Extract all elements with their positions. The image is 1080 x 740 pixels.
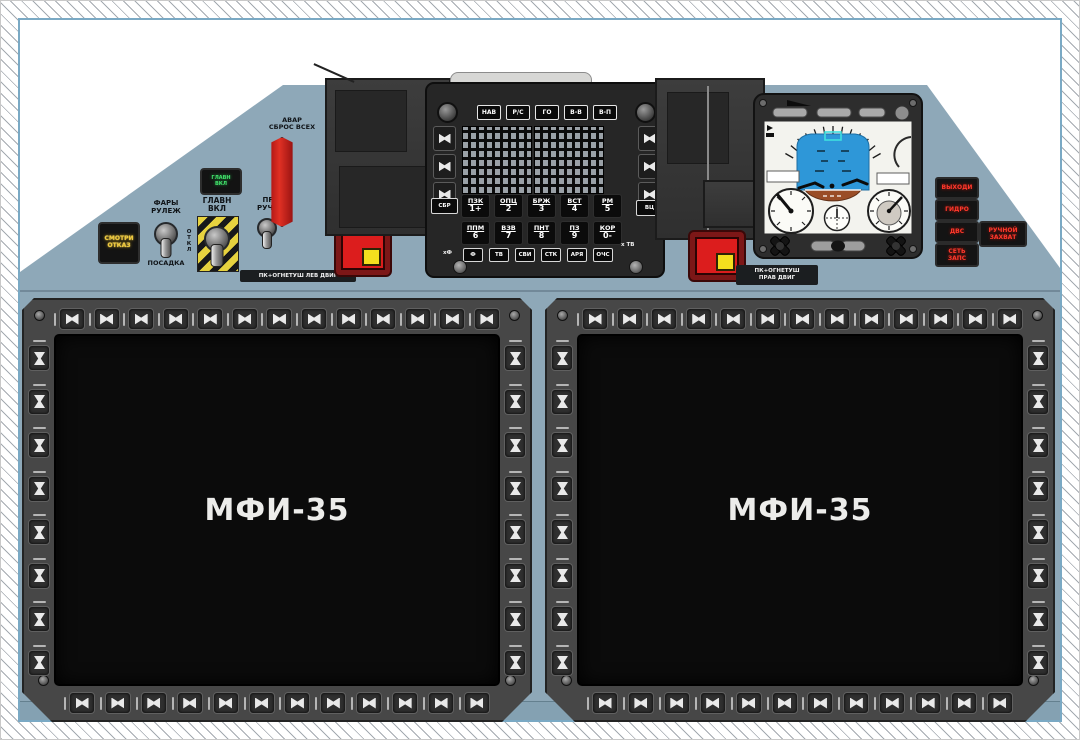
bezel-separator <box>838 697 840 710</box>
bezel-cell <box>244 692 275 714</box>
bezel-button[interactable] <box>915 692 941 714</box>
warning-light: ГИДРО <box>935 199 979 221</box>
bezel-button[interactable] <box>28 606 50 632</box>
bezel-cell <box>612 308 643 330</box>
bezel-cell <box>504 427 526 458</box>
key-vzv-7[interactable]: ВЗВ7 <box>494 221 523 245</box>
bezel-button[interactable] <box>592 692 618 714</box>
bezel-separator <box>33 514 46 516</box>
warning-light: ДВС <box>935 221 979 243</box>
bowtie-icon <box>1033 613 1044 626</box>
mode-button-row: НАВ Р/С ГО В-В В-П <box>477 105 617 120</box>
bowtie-icon <box>238 314 251 325</box>
bezel-cell <box>1027 558 1049 589</box>
bezel-button[interactable] <box>551 563 573 589</box>
bezel-separator <box>1032 601 1045 603</box>
bowtie-icon <box>480 314 493 325</box>
key-svi[interactable]: СВИ <box>515 248 535 262</box>
bezel-button[interactable] <box>504 476 526 502</box>
bezel-button[interactable] <box>551 389 573 415</box>
bezel-button[interactable] <box>94 308 120 330</box>
bowtie-icon <box>204 314 217 325</box>
bezel-button[interactable] <box>551 650 573 676</box>
bowtie-icon <box>865 314 878 325</box>
bowtie-icon <box>934 314 947 325</box>
bowtie-icon <box>510 395 521 408</box>
bezel-cell <box>1027 384 1049 415</box>
bezel-cell <box>551 558 573 589</box>
bezel-separator <box>261 313 263 326</box>
bezel-separator <box>509 384 522 386</box>
bezel-button[interactable] <box>686 308 712 330</box>
bezel-cell <box>434 308 465 330</box>
bezel-button[interactable] <box>504 345 526 371</box>
bowtie-icon <box>219 698 232 709</box>
bezel-button[interactable] <box>651 308 677 330</box>
bezel-cell <box>387 692 418 714</box>
bezel-separator <box>874 697 876 710</box>
bezel-separator <box>423 697 425 710</box>
numeric-key-row-2: ППМ6 ВЗВ7 ПНТ8 ПЗ9 КОР0- <box>461 221 622 245</box>
bowtie-icon <box>510 656 521 669</box>
key-num-label: 3 <box>539 205 545 213</box>
bezel-separator <box>459 697 461 710</box>
bowtie-icon <box>34 526 45 539</box>
alphanumeric-matrix-left <box>462 126 532 194</box>
bezel-screw <box>557 310 568 321</box>
bezel-button[interactable] <box>1027 650 1049 676</box>
bezel-separator <box>854 313 856 326</box>
bezel-separator <box>1032 427 1045 429</box>
fire-button-face <box>341 232 385 270</box>
bowtie-icon <box>1003 314 1016 325</box>
bezel-button[interactable] <box>997 308 1023 330</box>
bezel-button[interactable] <box>464 692 490 714</box>
key-pz-9[interactable]: ПЗ9 <box>560 221 589 245</box>
bezel-button[interactable] <box>266 308 292 330</box>
switch-lever <box>262 231 272 249</box>
bezel-cell <box>1027 645 1049 676</box>
bezel-col-right <box>1026 340 1050 676</box>
bezel-button[interactable] <box>879 692 905 714</box>
key-f[interactable]: Ф <box>463 248 483 262</box>
bezel-button[interactable] <box>392 692 418 714</box>
bezel-button[interactable] <box>474 308 500 330</box>
bezel-cell <box>854 308 885 330</box>
bezel-separator <box>659 697 661 710</box>
posadka-label: ПОСАДКА <box>134 260 198 267</box>
bezel-cell <box>504 514 526 545</box>
bowtie-icon <box>831 314 844 325</box>
bowtie-icon <box>363 698 376 709</box>
bezel-button[interactable] <box>69 692 95 714</box>
bowtie-icon <box>557 395 568 408</box>
bezel-button[interactable] <box>1027 519 1049 545</box>
bezel-button[interactable] <box>439 308 465 330</box>
bezel-button[interactable] <box>405 308 431 330</box>
bezel-cell <box>1027 514 1049 545</box>
key-opc-2[interactable]: ОПЦ2 <box>494 194 523 218</box>
bezel-separator <box>556 601 569 603</box>
bowtie-icon <box>623 314 636 325</box>
bezel-cell <box>296 308 327 330</box>
bezel-button[interactable] <box>249 692 275 714</box>
bezel-separator <box>819 313 821 326</box>
bezel-button[interactable] <box>28 650 50 676</box>
bezel-cell <box>767 692 798 714</box>
console-screw-left <box>453 260 467 274</box>
bezel-separator <box>244 697 246 710</box>
bezel-button[interactable] <box>755 308 781 330</box>
bezel-button[interactable] <box>370 308 396 330</box>
bezel-cell <box>577 308 608 330</box>
fire-button-face <box>695 237 739 275</box>
bezel-separator <box>556 471 569 473</box>
bowtie-icon <box>34 352 45 365</box>
bezel-button[interactable] <box>28 345 50 371</box>
bezel-button[interactable] <box>128 308 154 330</box>
avar-sbros-handle[interactable] <box>268 137 296 227</box>
avar-sbros-label: АВАР СБРОС ВСЕХ <box>256 117 328 131</box>
bezel-separator <box>296 313 298 326</box>
bowtie-icon <box>135 314 148 325</box>
bowtie-icon <box>399 698 412 709</box>
bezel-button[interactable] <box>1027 389 1049 415</box>
bezel-button[interactable] <box>789 308 815 330</box>
key-rm-5[interactable]: РМ5 <box>593 194 622 218</box>
bowtie-icon <box>796 314 809 325</box>
key-num-label: 4 <box>572 205 578 213</box>
bezel-cell <box>838 692 869 714</box>
bezel-button[interactable] <box>551 432 573 458</box>
key-kor-0[interactable]: КОР0- <box>593 221 622 245</box>
bezel-separator <box>279 697 281 710</box>
bezel-separator <box>509 427 522 429</box>
console-knob-right[interactable] <box>635 102 656 123</box>
bezel-cell <box>992 308 1023 330</box>
bezel-cell <box>28 558 50 589</box>
bezel-cell <box>551 514 573 545</box>
bowtie-icon <box>510 569 521 582</box>
bezel-cell <box>28 471 50 502</box>
bezel-cell <box>208 692 239 714</box>
bezel-button[interactable] <box>504 563 526 589</box>
bezel-button[interactable] <box>28 563 50 589</box>
key-num-label: 8 <box>539 232 545 240</box>
bezel-cell <box>331 308 362 330</box>
bezel-cell <box>1027 427 1049 458</box>
bezel-button[interactable] <box>551 476 573 502</box>
bezel-separator <box>158 313 160 326</box>
bezel-separator <box>802 697 804 710</box>
bezel-cell <box>136 692 167 714</box>
bezel-button[interactable] <box>28 389 50 415</box>
bezel-separator <box>556 645 569 647</box>
bowtie-icon <box>34 395 45 408</box>
bowtie-icon <box>435 698 448 709</box>
bezel-screw <box>1032 310 1043 321</box>
fire-right-tag: ПК+ОГНЕТУШ ПРАВ ДВИГ <box>736 265 818 285</box>
bezel-button[interactable] <box>628 692 654 714</box>
bezel-separator <box>556 340 569 342</box>
bezel-button[interactable] <box>951 692 977 714</box>
bowtie-icon <box>1033 569 1044 582</box>
bezel-cell <box>819 308 850 330</box>
bezel-cell <box>504 558 526 589</box>
bezel-button[interactable] <box>320 692 346 714</box>
key-ochs[interactable]: ОЧС <box>593 248 613 262</box>
bezel-separator <box>957 313 959 326</box>
bezel-button[interactable] <box>504 432 526 458</box>
bezel-cell <box>659 692 690 714</box>
bowtie-icon <box>814 698 827 709</box>
mfd-screen: МФИ-35 <box>577 334 1023 686</box>
bezel-separator <box>982 697 984 710</box>
bezel-separator <box>469 313 471 326</box>
bowtie-icon <box>599 698 612 709</box>
bezel-separator <box>315 697 317 710</box>
key-num-label: 1+ <box>469 205 481 213</box>
bowtie-icon <box>557 352 568 365</box>
bowtie-icon <box>692 314 705 325</box>
bezel-button[interactable] <box>617 308 643 330</box>
data-entry-console: НАВ Р/С ГО В-В В-П СБР ВЦ ПЗК1+ ОПЦ2 БРЖ… <box>425 82 665 278</box>
bezel-button[interactable] <box>664 692 690 714</box>
key-vst-4[interactable]: ВСТ4 <box>560 194 589 218</box>
bezel-cell <box>315 692 346 714</box>
bowtie-icon <box>850 698 863 709</box>
rocker-glyph-icon <box>439 134 451 144</box>
fire-button-yellow-square <box>362 248 381 266</box>
bezel-button[interactable] <box>28 519 50 545</box>
bezel-cell <box>888 308 919 330</box>
bowtie-icon <box>470 698 483 709</box>
bezel-cell <box>551 601 573 632</box>
bezel-cell <box>695 692 726 714</box>
bezel-cell <box>646 308 677 330</box>
mode-button-vv[interactable]: В-В <box>564 105 588 120</box>
bezel-button[interactable] <box>141 692 167 714</box>
mode-button-vp[interactable]: В-П <box>593 105 617 120</box>
bezel-button[interactable] <box>928 308 954 330</box>
bezel-button[interactable] <box>893 308 919 330</box>
bezel-cell <box>551 427 573 458</box>
bezel-separator <box>33 645 46 647</box>
bezel-button[interactable] <box>504 389 526 415</box>
bowtie-icon <box>1033 526 1044 539</box>
bezel-cell <box>192 308 223 330</box>
bezel-button[interactable] <box>28 432 50 458</box>
bezel-separator <box>434 313 436 326</box>
key-ppm-6[interactable]: ППМ6 <box>461 221 490 245</box>
mode-button-rs[interactable]: Р/С <box>506 105 530 120</box>
glavn-vkl-switch[interactable] <box>204 226 230 252</box>
bezel-cell <box>1027 471 1049 502</box>
bezel-button[interactable] <box>1027 476 1049 502</box>
bezel-button[interactable] <box>163 308 189 330</box>
bezel-cell <box>731 692 762 714</box>
mfd-model-label: МФИ-35 <box>205 493 350 528</box>
bezel-button[interactable] <box>336 308 362 330</box>
bowtie-icon <box>100 314 113 325</box>
bezel-button[interactable] <box>551 606 573 632</box>
bowtie-icon <box>76 698 89 709</box>
bowtie-icon <box>147 698 160 709</box>
bezel-button[interactable] <box>736 692 762 714</box>
smotri-otkaz-annunciator: СМОТРИ ОТКАЗ <box>98 222 140 264</box>
bowtie-icon <box>34 482 45 495</box>
bezel-separator <box>351 697 353 710</box>
bezel-separator <box>509 645 522 647</box>
mode-button-nav[interactable]: НАВ <box>477 105 501 120</box>
key-stk[interactable]: СТК <box>541 248 561 262</box>
key-pnt-8[interactable]: ПНТ8 <box>527 221 556 245</box>
bezel-button[interactable] <box>356 692 382 714</box>
key-brzh-3[interactable]: БРЖ3 <box>527 194 556 218</box>
console-knob-left[interactable] <box>437 102 458 123</box>
key-tv[interactable]: ТВ <box>489 248 509 262</box>
mode-button-go[interactable]: ГО <box>535 105 559 120</box>
bezel-separator <box>767 697 769 710</box>
bezel-cell <box>261 308 292 330</box>
bezel-cell <box>89 308 120 330</box>
bezel-separator <box>365 313 367 326</box>
key-pzk-1[interactable]: ПЗК1+ <box>461 194 490 218</box>
bezel-button[interactable] <box>551 345 573 371</box>
bezel-separator <box>623 697 625 710</box>
bezel-col-left <box>550 340 574 676</box>
bezel-cell <box>28 340 50 371</box>
bezel-button[interactable] <box>987 692 1013 714</box>
bezel-button[interactable] <box>504 606 526 632</box>
bezel-button[interactable] <box>859 308 885 330</box>
sbr-key[interactable]: СБР <box>431 198 458 214</box>
bezel-button[interactable] <box>1027 345 1049 371</box>
bezel-button[interactable] <box>301 308 327 330</box>
key-arya[interactable]: АРЯ <box>567 248 587 262</box>
bezel-button[interactable] <box>213 692 239 714</box>
bezel-button[interactable] <box>105 692 131 714</box>
bezel-button[interactable] <box>284 692 310 714</box>
instrument-knob-right[interactable] <box>883 235 907 259</box>
bezel-cell <box>423 692 454 714</box>
bezel-button[interactable] <box>59 308 85 330</box>
mfd-screen: МФИ-35 <box>54 334 500 686</box>
bowtie-icon <box>510 613 521 626</box>
bowtie-icon <box>510 482 521 495</box>
bezel-button[interactable] <box>772 692 798 714</box>
bowtie-icon <box>273 314 286 325</box>
bezel-button[interactable] <box>197 308 223 330</box>
bezel-cell <box>587 692 618 714</box>
bezel-separator <box>587 697 589 710</box>
bezel-row-bottom <box>64 691 490 715</box>
instrument-knob-left[interactable] <box>767 235 791 259</box>
bezel-button[interactable] <box>428 692 454 714</box>
bezel-separator <box>946 697 948 710</box>
bowtie-icon <box>670 698 683 709</box>
bezel-cell <box>459 692 490 714</box>
bezel-button[interactable] <box>1027 563 1049 589</box>
console-screw-right <box>629 260 643 274</box>
bezel-cell <box>504 601 526 632</box>
bowtie-icon <box>34 613 45 626</box>
bezel-cell <box>1027 601 1049 632</box>
bowtie-icon <box>589 314 602 325</box>
bezel-button[interactable] <box>824 308 850 330</box>
bowtie-icon <box>761 314 774 325</box>
bowtie-icon <box>557 656 568 669</box>
bezel-cell <box>504 645 526 676</box>
bezel-separator <box>227 313 229 326</box>
bezel-button[interactable] <box>232 308 258 330</box>
bezel-button[interactable] <box>504 650 526 676</box>
glavn-green-annunciator: ГЛАВН ВКЛ <box>200 168 242 195</box>
bezel-separator <box>123 313 125 326</box>
key-num-label: 9 <box>572 232 578 240</box>
xf-note: хФ <box>443 250 452 256</box>
bezel-button[interactable] <box>720 308 746 330</box>
bezel-button[interactable] <box>843 692 869 714</box>
bezel-button[interactable] <box>28 476 50 502</box>
bezel-button[interactable] <box>1027 606 1049 632</box>
bezel-button[interactable] <box>807 692 833 714</box>
fary-switch[interactable] <box>154 222 178 246</box>
bezel-screw <box>561 675 572 686</box>
bezel-button[interactable] <box>1027 432 1049 458</box>
bezel-cell <box>469 308 500 330</box>
bowtie-icon <box>1033 395 1044 408</box>
warning-light: ВЫХОДИ <box>935 177 979 199</box>
bezel-button[interactable] <box>962 308 988 330</box>
bezel-cell <box>1027 340 1049 371</box>
bezel-button[interactable] <box>177 692 203 714</box>
rocker-left-1[interactable] <box>433 126 456 151</box>
bezel-separator <box>400 313 402 326</box>
key-num-label: 7 <box>506 232 512 240</box>
bezel-separator <box>509 601 522 603</box>
bezel-cell <box>982 692 1013 714</box>
bowtie-icon <box>1033 439 1044 452</box>
bezel-row-top <box>54 306 500 332</box>
bezel-screw <box>38 675 49 686</box>
bezel-separator <box>509 471 522 473</box>
bowtie-icon <box>169 314 182 325</box>
bezel-button[interactable] <box>504 519 526 545</box>
bowtie-icon <box>557 569 568 582</box>
bezel-cell <box>400 308 431 330</box>
bezel-cell <box>28 384 50 415</box>
bezel-button[interactable] <box>551 519 573 545</box>
panel-seam <box>20 290 1060 292</box>
bezel-separator <box>89 313 91 326</box>
rocker-glyph-icon <box>644 190 656 200</box>
bezel-button[interactable] <box>582 308 608 330</box>
bezel-cell <box>279 692 310 714</box>
bezel-separator <box>33 558 46 560</box>
numeric-key-row-1: ПЗК1+ ОПЦ2 БРЖ3 ВСТ4 РМ5 <box>461 194 622 218</box>
bezel-separator <box>1032 384 1045 386</box>
bezel-separator <box>1032 471 1045 473</box>
bezel-button[interactable] <box>700 692 726 714</box>
bezel-separator <box>556 514 569 516</box>
key-num-label: 6 <box>473 232 479 240</box>
rocker-left-2[interactable] <box>433 154 456 179</box>
bowtie-icon <box>1033 352 1044 365</box>
bezel-separator <box>136 697 138 710</box>
bezel-separator <box>888 313 890 326</box>
bezel-separator <box>33 601 46 603</box>
